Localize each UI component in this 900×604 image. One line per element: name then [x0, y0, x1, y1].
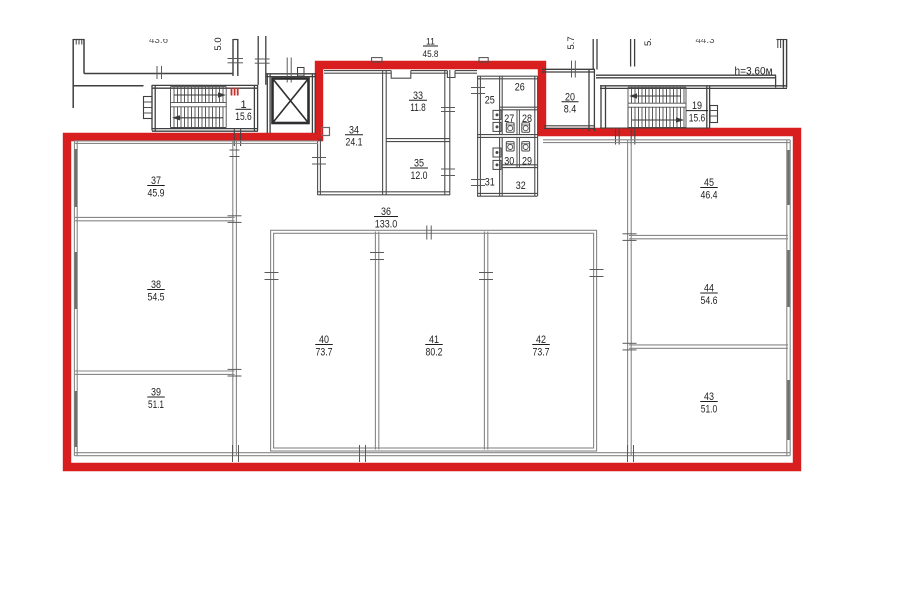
svg-text:73.7: 73.7: [316, 346, 333, 358]
svg-text:73.7: 73.7: [533, 346, 550, 358]
svg-text:28: 28: [522, 113, 532, 125]
svg-text:51.0: 51.0: [701, 403, 718, 415]
svg-text:15.6: 15.6: [235, 111, 252, 123]
svg-text:26: 26: [515, 82, 525, 94]
svg-text:5.7: 5.7: [566, 36, 577, 49]
svg-text:32: 32: [516, 180, 526, 192]
svg-text:54.6: 54.6: [701, 295, 718, 307]
svg-text:80.2: 80.2: [426, 346, 443, 358]
svg-text:45.9: 45.9: [148, 187, 165, 199]
svg-text:27: 27: [504, 113, 514, 125]
svg-text:30: 30: [504, 156, 514, 168]
svg-text:54.5: 54.5: [148, 291, 165, 303]
svg-text:45.8: 45.8: [423, 49, 439, 60]
svg-text:133.0: 133.0: [375, 218, 398, 230]
svg-text:12.0: 12.0: [411, 170, 428, 182]
svg-text:5.: 5.: [643, 38, 654, 46]
svg-text:51.1: 51.1: [148, 399, 164, 411]
svg-text:24.1: 24.1: [346, 137, 363, 149]
svg-text:11.8: 11.8: [410, 102, 426, 114]
svg-text:31: 31: [485, 177, 495, 189]
svg-text:5.0: 5.0: [213, 37, 224, 50]
svg-text:29: 29: [522, 156, 532, 168]
svg-text:25: 25: [485, 95, 495, 107]
svg-text:46.4: 46.4: [701, 189, 718, 201]
svg-text:15.6: 15.6: [689, 112, 706, 124]
svg-text:8.4: 8.4: [564, 104, 577, 116]
